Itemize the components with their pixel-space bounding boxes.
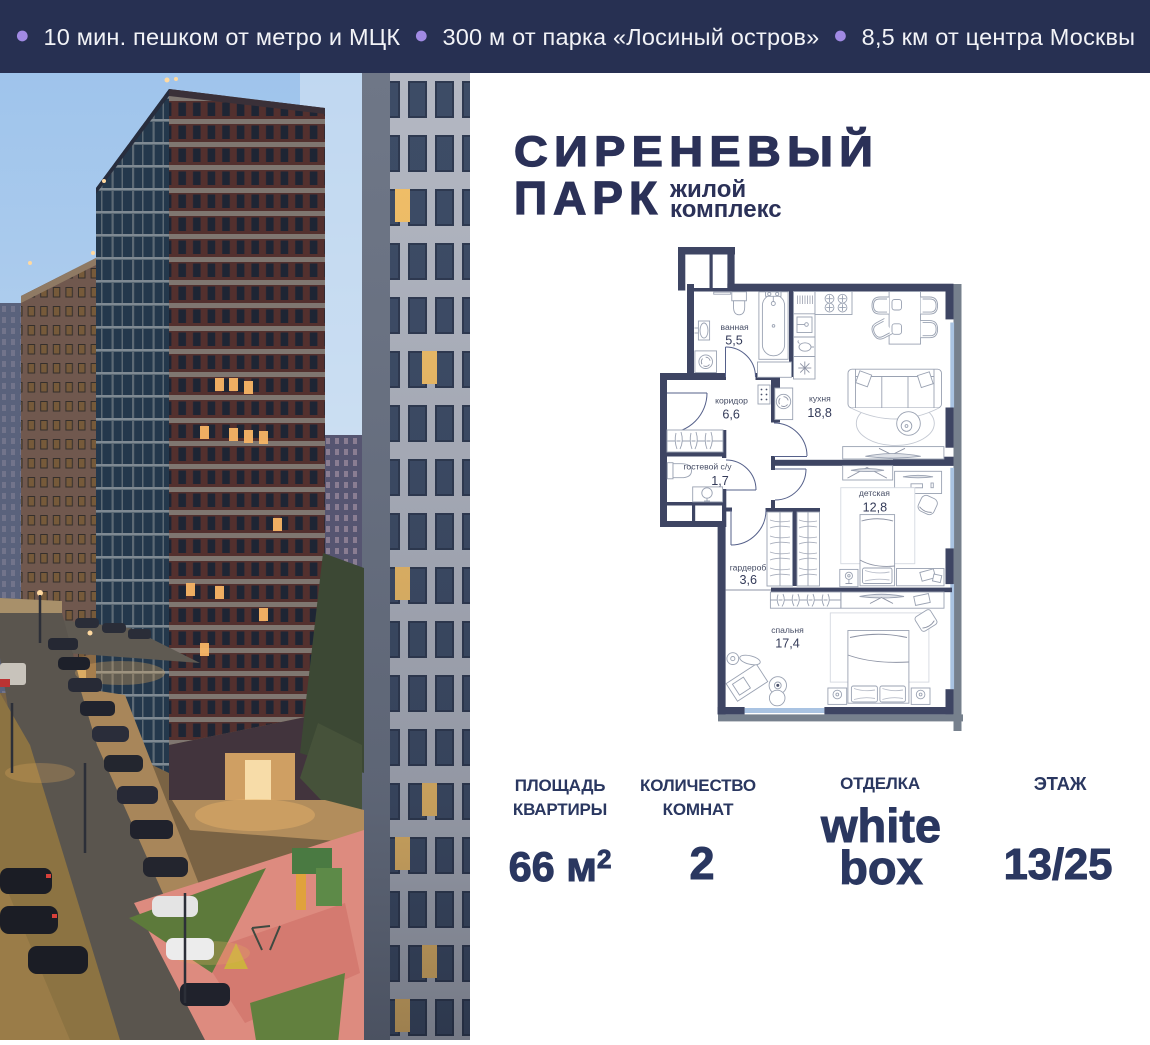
svg-text:1,7: 1,7: [711, 474, 729, 488]
svg-text:гостевой с/у: гостевой с/у: [683, 462, 732, 472]
svg-text:гардероб: гардероб: [730, 563, 767, 573]
svg-text:6,6: 6,6: [722, 408, 740, 422]
svg-text:3,6: 3,6: [739, 573, 757, 587]
svg-text:12,8: 12,8: [863, 500, 888, 514]
svg-text:спальня: спальня: [771, 625, 804, 635]
svg-text:18,8: 18,8: [807, 406, 832, 420]
svg-text:коридор: коридор: [715, 395, 748, 405]
svg-text:5,5: 5,5: [725, 334, 743, 348]
svg-text:кухня: кухня: [809, 394, 831, 404]
svg-text:17,4: 17,4: [775, 636, 800, 650]
svg-text:детская: детская: [859, 488, 890, 498]
svg-text:ванная: ванная: [721, 322, 750, 332]
